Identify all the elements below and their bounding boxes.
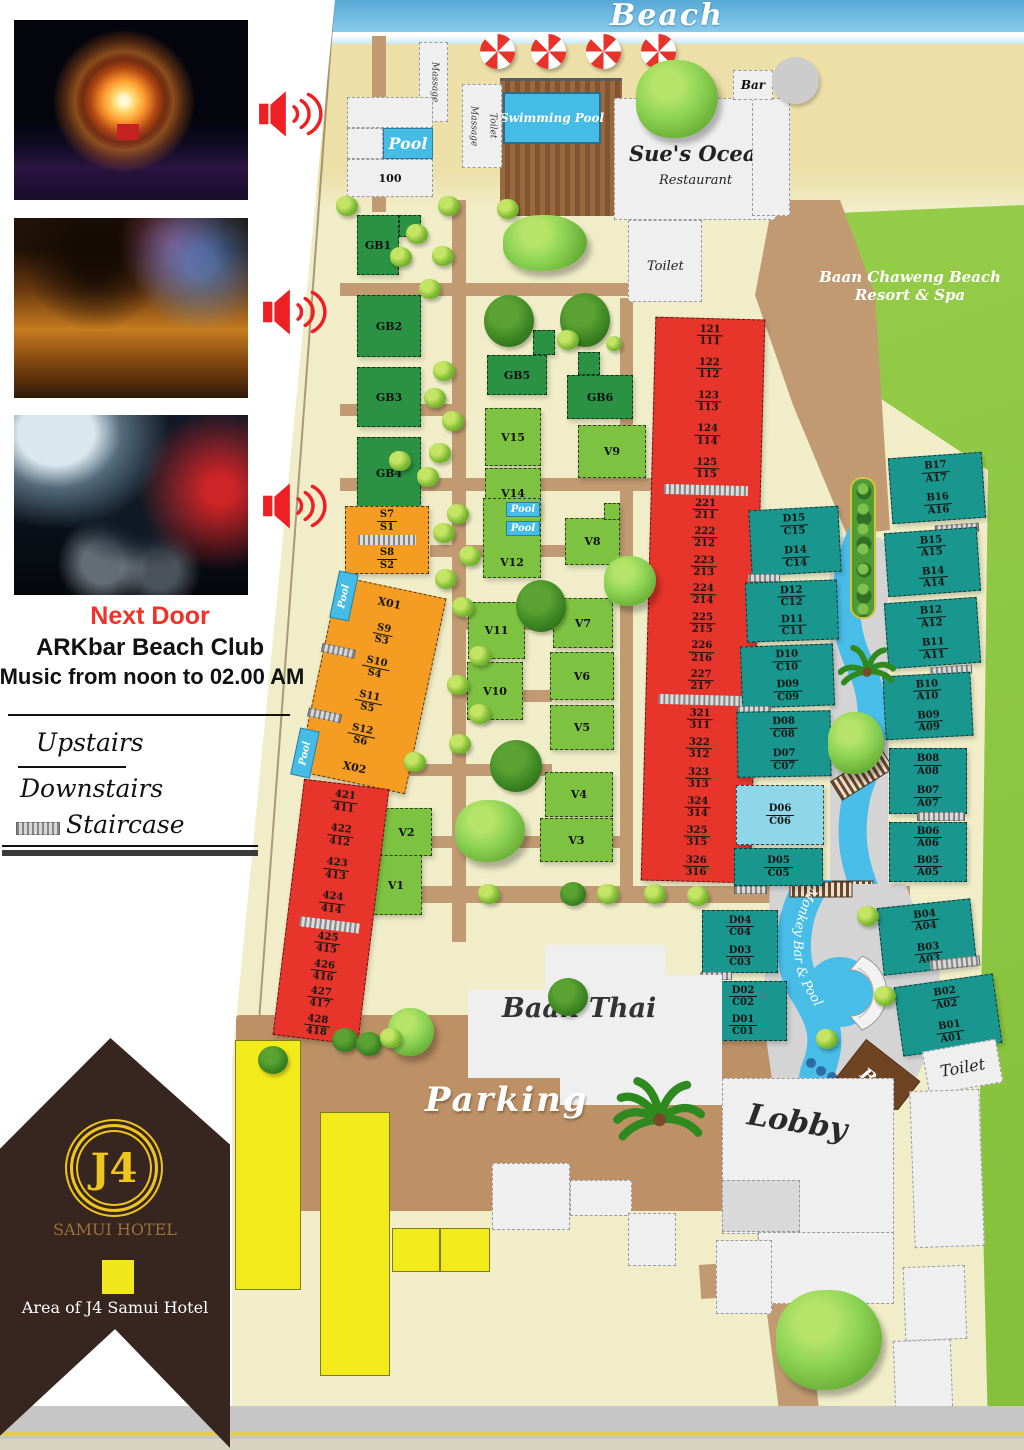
- speaker-icon: [260, 478, 332, 538]
- room-downstairs: S6: [352, 735, 368, 749]
- room-pair: D05C05: [735, 855, 822, 878]
- staircase: [358, 535, 416, 545]
- room-downstairs: C11: [782, 626, 804, 638]
- room-downstairs: 314: [687, 808, 708, 820]
- j4-logo: J4: [70, 1124, 158, 1212]
- room-downstairs: A17: [925, 472, 947, 485]
- room-upstairs: 321: [686, 708, 713, 721]
- room-upstairs: D09: [773, 679, 802, 692]
- bush-icon: [597, 884, 619, 904]
- room-pair: B07A07: [890, 785, 966, 808]
- room-downstairs: A04: [915, 920, 938, 933]
- room-upstairs: 124: [694, 423, 721, 436]
- room-upstairs: 223: [690, 554, 717, 567]
- tree-icon: [490, 740, 542, 792]
- room-pair: D06C06: [737, 803, 823, 826]
- room-pair: 422412: [297, 819, 383, 852]
- room-downstairs: 315: [686, 837, 707, 849]
- room-pair: 123113: [654, 389, 763, 415]
- room-pair: B14A14: [887, 563, 979, 593]
- room-upstairs: 221: [692, 497, 719, 510]
- room-upstairs: D10: [772, 649, 801, 662]
- lobby-annex: [903, 1265, 968, 1341]
- club-name: ARKbar Beach Club: [0, 634, 300, 662]
- room-downstairs: 112: [698, 369, 719, 381]
- room-upstairs: S7: [377, 509, 397, 521]
- room-downstairs: C15: [783, 525, 805, 537]
- room-downstairs: C06: [769, 816, 791, 827]
- room-downstairs: C10: [776, 661, 798, 673]
- tree-icon: [776, 1290, 882, 1390]
- room-pair: 225215: [648, 610, 757, 636]
- room-downstairs: A01: [940, 1031, 963, 1045]
- room-upstairs: 222: [691, 526, 718, 539]
- room-upstairs: 324: [684, 796, 711, 809]
- room-pair: B11A11: [887, 634, 979, 664]
- bush-icon: [417, 467, 439, 487]
- room-upstairs: 125: [693, 456, 720, 469]
- bush-icon: [433, 361, 455, 381]
- room-downstairs: S3: [373, 633, 389, 647]
- room-downstairs: 114: [697, 435, 718, 447]
- room-pair: D14C14: [751, 543, 840, 571]
- room-pair: 325315: [643, 824, 752, 850]
- room-downstairs: A06: [917, 838, 939, 849]
- room-downstairs: 111: [699, 336, 720, 348]
- room-downstairs: 413: [324, 869, 346, 883]
- room-upstairs: 326: [683, 854, 710, 867]
- room-downstairs: 312: [688, 749, 709, 761]
- room-pair: 222212: [650, 525, 759, 551]
- tree-icon: [332, 1028, 358, 1052]
- beach-party-photo: [14, 218, 248, 398]
- room-upstairs: 122: [696, 357, 723, 370]
- room-downstairs: 414: [320, 902, 342, 916]
- room-pair: 125115: [652, 455, 761, 481]
- room-downstairs: 316: [685, 866, 706, 878]
- divider: [2, 850, 258, 856]
- restaurant-wing: [752, 98, 790, 216]
- room-upstairs: D04: [726, 915, 755, 927]
- j4-area-building: [320, 1112, 390, 1376]
- room-pair: 421411: [301, 785, 387, 818]
- room-downstairs: A16: [927, 504, 949, 517]
- bush-icon: [459, 546, 481, 566]
- room-downstairs: C14: [785, 557, 807, 569]
- tree-icon: [548, 978, 588, 1016]
- palm-tree-icon: [838, 640, 896, 706]
- speaker-icon: [260, 284, 332, 344]
- building-100: 100: [347, 159, 433, 197]
- divider: [8, 714, 290, 716]
- room-downstairs: 417: [309, 997, 331, 1011]
- room-downstairs: 115: [696, 469, 717, 481]
- pool-sign: Pool: [383, 128, 433, 159]
- room-downstairs: 113: [697, 402, 718, 414]
- tree-icon: [516, 580, 566, 632]
- room-pair: B09A09: [885, 708, 972, 736]
- fireworks-photo: [14, 20, 248, 200]
- room-upstairs: B06: [914, 826, 942, 838]
- bush-icon: [433, 523, 455, 543]
- next-door-heading: Next Door: [0, 602, 300, 631]
- room-upstairs: 225: [689, 611, 716, 624]
- room-downstairs: 313: [688, 778, 709, 790]
- room-upstairs: 325: [683, 825, 710, 838]
- j4-area-building: [392, 1228, 440, 1272]
- club-sign: [117, 124, 139, 140]
- room-upstairs: 323: [685, 766, 712, 779]
- lobby-annex: [909, 1089, 984, 1248]
- building-gb1: GB1: [357, 215, 399, 275]
- building-d10-c09: D10C10D09C09: [740, 643, 835, 708]
- room-upstairs: B05: [914, 855, 942, 867]
- room-upstairs: S8: [377, 547, 397, 559]
- bush-icon: [469, 704, 491, 724]
- room-pair: D03C03: [703, 945, 777, 968]
- room-downstairs: S5: [359, 701, 375, 715]
- bush-icon: [438, 196, 460, 216]
- bar-table: [772, 57, 819, 104]
- room-pair: D11C11: [747, 612, 838, 639]
- building-west-red-wing: 421411422412423413424414 425415426416427…: [273, 779, 390, 1046]
- room-pair: B10A10: [884, 677, 971, 705]
- restaurant-toilet-building: Toilet: [628, 220, 702, 302]
- building-b17-a16: B17A17B16A16: [888, 452, 986, 524]
- swimming-pool: Swimming Pool: [503, 92, 601, 144]
- bush-icon: [336, 196, 358, 216]
- room-pair: S8S2: [346, 547, 428, 570]
- bush-icon: [478, 884, 500, 904]
- room-downstairs: 418: [305, 1025, 327, 1039]
- room-downstairs: 213: [693, 567, 714, 579]
- room-pair: D15C15: [750, 511, 839, 539]
- tree-icon: [258, 1046, 288, 1074]
- j4-area-building: [440, 1228, 490, 1272]
- bush-icon: [874, 986, 896, 1006]
- room-pair: S7S1: [346, 509, 428, 532]
- bush-icon: [404, 752, 426, 772]
- room-upstairs: 226: [688, 640, 715, 653]
- massage-toilet-hut: Massage Toilet: [462, 84, 502, 168]
- palm-tree-icon: [612, 1072, 707, 1168]
- room-downstairs: A07: [917, 798, 939, 809]
- room-downstairs: 212: [694, 538, 715, 550]
- room-downstairs: 216: [691, 652, 712, 664]
- parking-label: Parking: [425, 1080, 589, 1120]
- shoreline: [232, 32, 1024, 44]
- resort-map-page: Bar Monkey Bar & Pool Swimming Pool Mass…: [0, 0, 1024, 1450]
- room-downstairs: 211: [695, 510, 716, 522]
- room-upstairs: D08: [769, 716, 798, 729]
- room-downstairs: C07: [773, 760, 795, 772]
- building-d08-c07: D08C08D07C07: [736, 710, 831, 778]
- legend-upstairs: Upstairs: [36, 728, 144, 757]
- room-pair: B15A15: [885, 532, 977, 562]
- legend-staircase: Staircase: [66, 810, 185, 839]
- neighbor-resort-label: Baan Chaweng Beach Resort & Spa: [810, 268, 1010, 304]
- room-pair: D08C08: [738, 716, 830, 741]
- area-label: Area of J4 Samui Hotel: [0, 1298, 230, 1317]
- building-b08-a07: B08A08B07A07: [889, 748, 967, 814]
- room-upstairs: 121: [696, 324, 723, 337]
- brand-name: SAMUI HOTEL: [0, 1220, 230, 1239]
- building-gb5: GB5: [487, 355, 547, 395]
- bush-icon: [447, 504, 469, 524]
- room-pair: 223213: [650, 553, 759, 579]
- building-s7-s2: S7S1 S8S2: [345, 506, 429, 574]
- room-upstairs: B08: [914, 753, 942, 765]
- room-pair: 224214: [649, 582, 758, 608]
- room-downstairs: A09: [918, 721, 940, 733]
- lobby-annex: [722, 1180, 800, 1232]
- building-d05-c05: D05C05: [734, 848, 823, 886]
- j4-hotel-banner: J4 SAMUI HOTEL Area of J4 Samui Hotel: [0, 1038, 230, 1448]
- staircase: [917, 812, 965, 821]
- bush-icon: [406, 224, 428, 244]
- room-downstairs: 412: [329, 835, 351, 849]
- building-v15: V15: [485, 408, 541, 466]
- room-downstairs: A12: [921, 617, 943, 630]
- public-road: [0, 1406, 1024, 1450]
- music-hours: Music from noon to 02.00 AM: [0, 664, 312, 690]
- pool-house: [347, 128, 383, 159]
- building-v2: V2: [381, 808, 432, 856]
- bush-icon: [432, 246, 454, 266]
- room-pair: B16A16: [891, 489, 984, 519]
- speaker-icon: [256, 86, 328, 146]
- room-upstairs: D11: [778, 613, 807, 626]
- room-downstairs: S4: [366, 667, 382, 681]
- room-downstairs: A11: [923, 649, 945, 662]
- room-pair: 221211: [651, 496, 760, 522]
- legend-downstairs: Downstairs: [20, 774, 163, 803]
- room-downstairs: S1: [380, 522, 394, 533]
- bush-icon: [419, 279, 441, 299]
- bush-icon: [816, 1029, 838, 1049]
- flower-planter: [850, 477, 876, 619]
- tree-icon: [560, 882, 586, 906]
- room-upstairs: D12: [777, 584, 806, 597]
- bush-icon: [687, 886, 709, 906]
- room-pair: D12C12: [746, 583, 837, 610]
- room-upstairs: D03: [726, 945, 755, 957]
- room-upstairs: D01: [729, 1014, 758, 1026]
- room-downstairs: A10: [916, 690, 938, 702]
- room-pair: B08A08: [890, 753, 966, 776]
- room-upstairs: D07: [770, 748, 799, 761]
- room-downstairs: A14: [923, 577, 945, 590]
- room-pair: 121111: [656, 323, 765, 349]
- room-pair: D04C04: [703, 915, 777, 938]
- beach-umbrella-icon: [586, 34, 621, 69]
- room-downstairs: 215: [692, 624, 713, 636]
- beach-bar: Bar: [733, 70, 773, 100]
- room-downstairs: 411: [333, 801, 355, 815]
- bush-icon: [606, 336, 622, 351]
- bush-icon: [557, 330, 579, 350]
- room-pair: B17A17: [889, 457, 982, 487]
- room-pair: D07C07: [738, 748, 830, 773]
- room-pair: B02A02: [895, 980, 995, 1017]
- room-downstairs: C05: [768, 868, 790, 879]
- building-d12-c11: D12C12D11C11: [745, 579, 839, 642]
- room-downstairs: 415: [315, 943, 337, 957]
- room-pair: 227217: [647, 668, 756, 694]
- service-building: [628, 1213, 676, 1266]
- room-pair: 424414: [289, 886, 375, 919]
- building-d04-c03: D04C04D03C03: [702, 910, 778, 973]
- building-d15-c14: D15C15D14C14: [748, 506, 841, 577]
- building-gb3: GB3: [357, 367, 421, 427]
- building-b15-a14: B15A15B14A14: [884, 527, 981, 597]
- bush-icon: [497, 199, 519, 219]
- room-upstairs: D06: [766, 803, 795, 815]
- building-d06-c06: D06C06: [736, 785, 824, 845]
- room-downstairs: C03: [729, 957, 751, 968]
- bush-icon: [449, 734, 471, 754]
- upstairs-underline: [18, 766, 126, 768]
- service-building: [570, 1180, 632, 1216]
- bush-icon: [380, 1028, 402, 1048]
- room-downstairs: C02: [732, 997, 754, 1008]
- bush-icon: [469, 646, 491, 666]
- lobby-annex: [716, 1240, 772, 1314]
- room-downstairs: C12: [781, 597, 803, 609]
- room-upstairs: 123: [695, 390, 722, 403]
- building-b06-a05: B06A06B05A05: [889, 822, 967, 882]
- room-downstairs: A15: [921, 546, 943, 559]
- tree-icon: [484, 295, 534, 347]
- room-pair: B12A12: [885, 602, 977, 632]
- room-pair: 122112: [655, 356, 764, 382]
- bush-icon: [390, 247, 412, 267]
- room-downstairs: A02: [935, 997, 958, 1011]
- room-downstairs: 311: [689, 720, 710, 732]
- pool-sign: Pool: [506, 521, 540, 536]
- room-pair: B04A04: [878, 904, 972, 937]
- room-downstairs: C01: [732, 1026, 754, 1037]
- tree-icon: [356, 1032, 382, 1056]
- j4-area-building: [235, 1040, 301, 1290]
- room-downstairs: 214: [692, 595, 713, 607]
- building-v4: V4: [545, 772, 613, 817]
- room-downstairs: S2: [380, 560, 394, 571]
- room-upstairs: D05: [764, 855, 793, 867]
- room-pair: B05A05: [890, 855, 966, 878]
- bush-icon: [429, 443, 451, 463]
- building-gb2: GB2: [357, 295, 421, 357]
- room-downstairs: 416: [312, 970, 334, 984]
- bush-icon: [447, 675, 469, 695]
- service-building: [492, 1163, 570, 1230]
- beach-umbrella-icon: [480, 34, 515, 69]
- building-gb6: GB6: [567, 375, 633, 419]
- room-upstairs: 224: [690, 583, 717, 596]
- room-upstairs: 227: [687, 669, 714, 682]
- room-downstairs: C08: [773, 728, 795, 740]
- pool-sign: Pool: [506, 502, 540, 517]
- room-upstairs: D02: [729, 985, 758, 997]
- bush-icon: [857, 906, 879, 926]
- room-downstairs: 217: [690, 681, 711, 693]
- bush-icon: [452, 597, 474, 617]
- room-upstairs: B07: [914, 785, 942, 797]
- room-downstairs: C04: [729, 927, 751, 938]
- bush-icon: [442, 411, 464, 431]
- bush-icon: [644, 884, 666, 904]
- staircase: [734, 886, 767, 894]
- building-v5: V5: [550, 705, 614, 750]
- lobby-annex: [893, 1339, 953, 1413]
- room-pair: D09C09: [742, 678, 834, 705]
- divider: [2, 845, 258, 847]
- room-downstairs: A05: [917, 867, 939, 878]
- building-b10-a09: B10A10B09A09: [882, 672, 973, 741]
- room-pair: D10C10: [741, 648, 833, 675]
- room-pair: 423413: [293, 853, 379, 886]
- room-pair: 124114: [653, 422, 762, 448]
- building-v8: V8: [565, 518, 620, 565]
- building-v9: V9: [578, 425, 646, 478]
- building-gb4: GB4: [357, 437, 421, 509]
- building-b12-a11: B12A12B11A11: [884, 597, 981, 669]
- room-downstairs: C09: [777, 691, 799, 703]
- bush-icon: [389, 451, 411, 471]
- room-upstairs: 322: [686, 737, 713, 750]
- pool-house: [347, 97, 433, 128]
- tree-icon: [503, 215, 587, 271]
- building-v6: V6: [550, 652, 614, 700]
- room-downstairs: A08: [917, 766, 939, 777]
- staircase-legend-swatch: [16, 822, 60, 835]
- building-v3: V3: [540, 818, 613, 862]
- bush-icon: [435, 569, 457, 589]
- beach-umbrella-icon: [531, 34, 566, 69]
- beach-label: Beach: [610, 0, 724, 33]
- dj-photo: [14, 415, 248, 595]
- bush-icon: [424, 388, 446, 408]
- area-color-swatch: [102, 1260, 134, 1294]
- room-pair: B06A06: [890, 826, 966, 849]
- tree-icon: [455, 800, 525, 862]
